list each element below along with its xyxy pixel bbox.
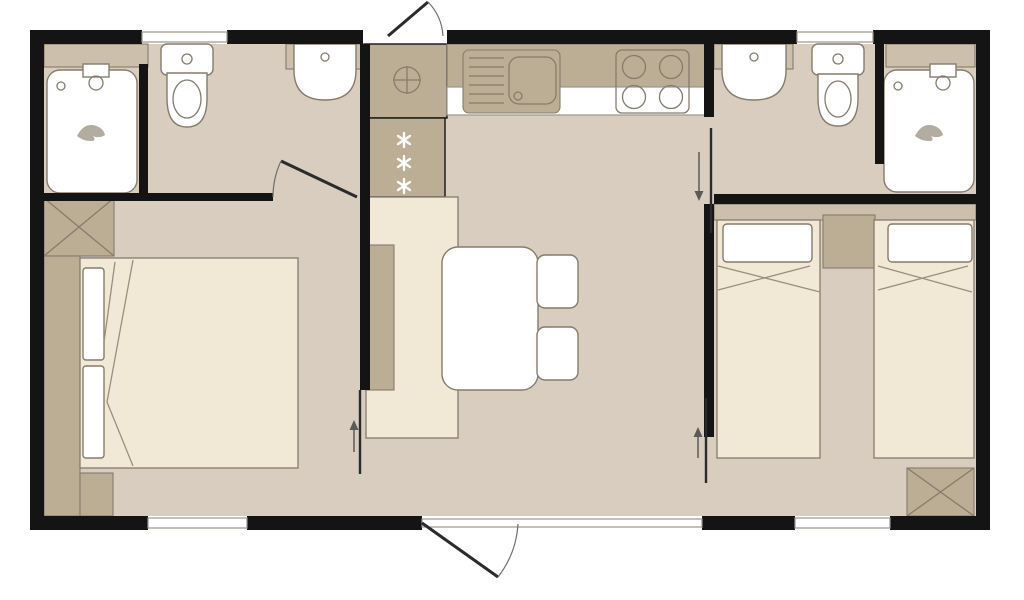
toilet	[812, 44, 864, 126]
double-bed	[80, 258, 298, 468]
shower-logo-icon	[97, 137, 101, 141]
nightstand	[823, 215, 875, 268]
floor-plan-drawing	[0, 0, 1024, 600]
toilet	[161, 44, 213, 127]
foot-bench	[80, 473, 113, 516]
chair	[537, 255, 578, 308]
door-swing-arc-icon	[428, 2, 443, 36]
window	[142, 32, 227, 42]
floor-plan-canvas	[0, 0, 1024, 600]
single-bed-left	[717, 220, 820, 458]
single-bed-right	[874, 220, 974, 458]
cross-wardrobe	[44, 198, 114, 256]
dining-table	[442, 247, 538, 390]
door-leaf	[422, 523, 498, 577]
entrance-door-top	[388, 2, 443, 36]
pillow	[83, 366, 104, 458]
headboard	[44, 256, 80, 516]
door-leaf	[388, 2, 428, 36]
window	[148, 518, 247, 528]
pillow	[723, 224, 812, 262]
door-swing-arc-icon	[498, 524, 518, 577]
tap-icon	[930, 64, 956, 77]
shower-logo-icon	[935, 137, 939, 141]
patio-glazing	[422, 519, 702, 527]
shower-cubicle	[884, 64, 974, 192]
chair	[537, 327, 578, 380]
shower-cubicle	[47, 64, 137, 193]
cross-wardrobe	[907, 468, 974, 516]
pillow	[83, 268, 104, 360]
pillow	[888, 224, 972, 262]
water-heater-unit	[364, 44, 447, 118]
bench-backrest	[366, 245, 394, 390]
sink-with-drainer	[463, 50, 560, 113]
window	[795, 518, 890, 528]
entrance-door-bottom	[422, 523, 518, 577]
window	[797, 32, 873, 42]
tap-icon	[83, 64, 109, 77]
fridge-freezer	[364, 118, 445, 197]
